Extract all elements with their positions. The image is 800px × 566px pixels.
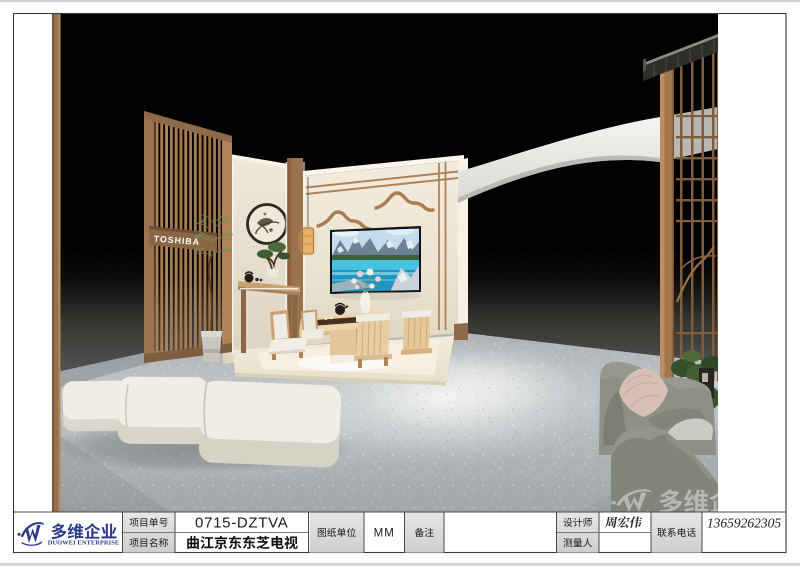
- svg-text:DUOWEI ENTERPRISE: DUOWEI ENTERPRISE: [48, 539, 119, 546]
- svg-text:0715-DZTVA: 0715-DZTVA: [195, 515, 288, 532]
- svg-text:MM: MM: [374, 528, 395, 540]
- svg-text:13659262305: 13659262305: [707, 515, 782, 530]
